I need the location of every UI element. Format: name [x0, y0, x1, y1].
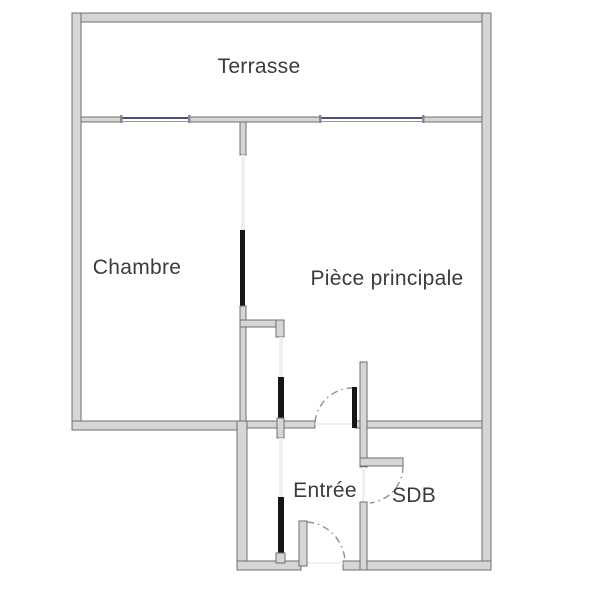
door-piece-entree-leaf	[352, 387, 357, 428]
closet-wall-cross	[277, 418, 284, 438]
window-1-left-tick	[120, 115, 123, 123]
room-label-chambre: Chambre	[93, 256, 181, 280]
window-1	[120, 115, 191, 123]
wall-bottom-left-segment	[237, 561, 301, 570]
wall-left-exterior	[72, 13, 81, 430]
partition-opening-guide	[241, 155, 245, 230]
middle-wall-segment-right	[355, 421, 482, 428]
floor-plan: Terrasse Chambre Pièce principale Entrée…	[0, 0, 606, 600]
partition-jog-hook	[276, 320, 284, 337]
wall-top-exterior	[72, 13, 491, 22]
sdb-opening-guide	[362, 467, 365, 502]
window-1-right-tick	[188, 115, 191, 123]
sliding-door-leaf-lower	[278, 497, 284, 555]
closet-opening-guide-upper	[279, 337, 283, 377]
door-piece-entree-swing-arc	[315, 388, 352, 422]
terrace-wall-segment-3	[424, 117, 482, 122]
door-sdb-leaf	[360, 458, 403, 466]
wall-lowerleft-vertical	[237, 421, 247, 570]
wall-right-exterior	[482, 13, 491, 570]
closet-wall	[276, 337, 285, 563]
entrance-door	[299, 521, 345, 566]
door-piece-entree-threshold	[315, 423, 352, 425]
room-label-entree: Entrée	[293, 479, 357, 503]
chambre-partition	[240, 122, 284, 421]
closet-wall-bottom-stub	[276, 553, 285, 563]
room-label-piece-principale: Pièce principale	[310, 267, 463, 291]
entrance-threshold-guide	[307, 562, 343, 564]
sdb-wall	[360, 362, 403, 570]
sdb-wall-upper	[360, 362, 367, 467]
room-label-sdb: SDB	[392, 484, 436, 508]
sliding-door-leaf-upper	[278, 377, 284, 418]
floor-plan-drawing	[0, 0, 606, 600]
window-2-right-tick	[422, 115, 425, 123]
partition-stub-top	[240, 122, 246, 155]
sdb-wall-lower	[360, 502, 367, 570]
door-piece-entree	[315, 387, 357, 428]
terrace-wall-segment-2	[190, 117, 321, 122]
entrance-door-swing-arc	[307, 522, 345, 562]
window-2	[319, 115, 425, 123]
sliding-door-leaf-chambre	[240, 230, 245, 306]
entrance-door-leaf	[299, 521, 307, 566]
wall-chambre-bottom	[72, 421, 247, 430]
closet-opening-guide-lower	[279, 438, 283, 497]
terrace-wall	[81, 115, 482, 123]
window-2-left-tick	[319, 115, 322, 123]
terrace-wall-segment-1	[81, 117, 122, 122]
room-label-terrasse: Terrasse	[218, 55, 301, 79]
